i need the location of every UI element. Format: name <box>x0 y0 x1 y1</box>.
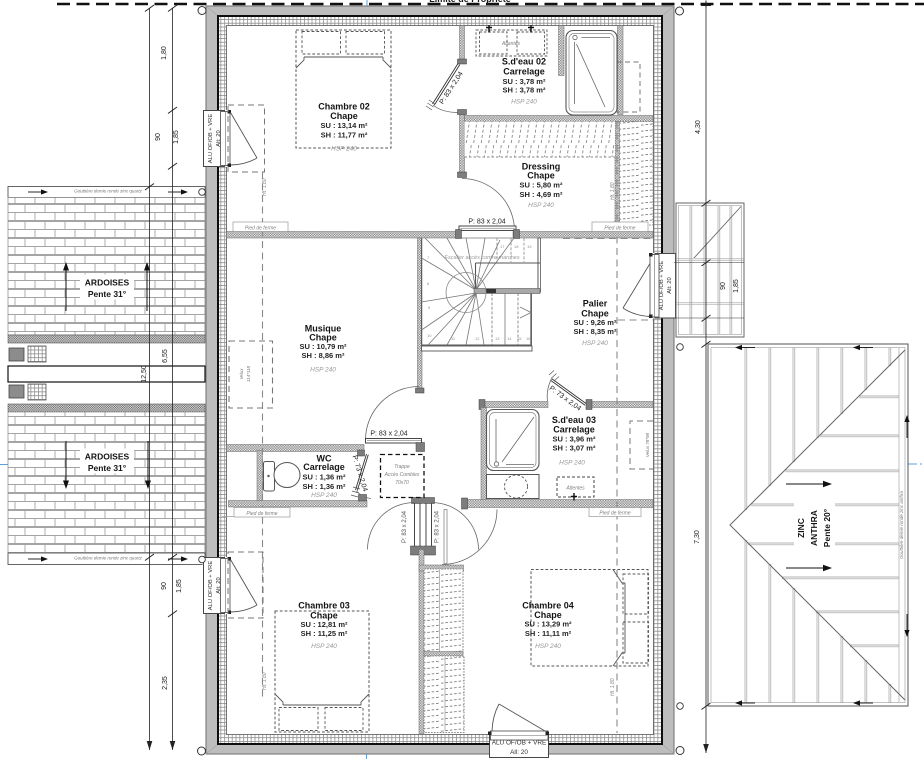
svg-text:Attentes: Attentes <box>565 486 585 492</box>
svg-text:Carrelage: Carrelage <box>503 67 545 77</box>
svg-text:Chape: Chape <box>534 610 562 620</box>
svg-text:SH : 8,86 m²: SH : 8,86 m² <box>302 351 345 360</box>
svg-text:Pied de ferme: Pied de ferme <box>604 226 635 232</box>
svg-text:Pente 20°: Pente 20° <box>822 508 832 547</box>
svg-text:HSP 240: HSP 240 <box>310 367 336 374</box>
svg-text:Ht. 1,80: Ht. 1,80 <box>610 182 616 200</box>
svg-text:90: 90 <box>155 133 162 141</box>
svg-text:Limite de Propriété: Limite de Propriété <box>429 0 511 4</box>
svg-text:SH : 3,78 m²: SH : 3,78 m² <box>503 86 546 95</box>
svg-text:ANTHRA: ANTHRA <box>809 510 819 546</box>
svg-text:Ht. 1,80: Ht. 1,80 <box>262 672 268 690</box>
svg-text:SH : 11,77 m²: SH : 11,77 m² <box>321 131 368 140</box>
svg-text:Carrelage: Carrelage <box>303 462 345 472</box>
svg-text:114*118: 114*118 <box>246 365 251 382</box>
svg-text:HSP 240: HSP 240 <box>582 340 608 347</box>
svg-text:Accès Combles: Accès Combles <box>384 472 420 478</box>
svg-text:1,85: 1,85 <box>173 130 180 144</box>
svg-text:HSP 240: HSP 240 <box>311 492 337 499</box>
svg-text:S.d'eau 03: S.d'eau 03 <box>552 415 596 425</box>
svg-text:SU : 13,14 m²: SU : 13,14 m² <box>320 121 368 130</box>
svg-text:ZINC: ZINC <box>796 518 806 538</box>
svg-text:1,80: 1,80 <box>161 46 168 60</box>
svg-text:6,55: 6,55 <box>162 349 169 363</box>
svg-text:Pied de ferme: Pied de ferme <box>245 226 276 232</box>
svg-text:ARDOISES: ARDOISES <box>85 278 130 288</box>
svg-text:Atlantes: Atlantes <box>501 41 521 47</box>
svg-text:HSP 240: HSP 240 <box>511 99 537 106</box>
svg-text:90: 90 <box>720 282 727 290</box>
svg-text:SU : 13,29 m²: SU : 13,29 m² <box>524 620 572 629</box>
svg-text:12: 12 <box>475 336 480 341</box>
svg-text:S.d'eau 02: S.d'eau 02 <box>502 57 546 67</box>
svg-text:Chape: Chape <box>527 171 555 181</box>
svg-text:SU : 3,96 m²: SU : 3,96 m² <box>553 435 596 444</box>
svg-text:SU : 5,80 m²: SU : 5,80 m² <box>520 181 563 190</box>
svg-text:7,30: 7,30 <box>694 530 701 544</box>
svg-text:SH : 8,35 m²: SH : 8,35 m² <box>574 327 617 336</box>
svg-text:Pied de ferme: Pied de ferme <box>246 511 277 517</box>
svg-text:4,30: 4,30 <box>695 120 702 134</box>
svg-text:12,50: 12,50 <box>141 365 148 383</box>
svg-text:ALU OF/OB + VRE: ALU OF/OB + VRE <box>208 114 214 164</box>
svg-text:Ht. 1,80: Ht. 1,80 <box>610 678 616 696</box>
svg-text:SH : 3,07 m²: SH : 3,07 m² <box>553 444 596 453</box>
svg-text:P: 83 x 2,04: P: 83 x 2,04 <box>468 219 505 226</box>
svg-text:ARDOISES: ARDOISES <box>85 452 130 462</box>
svg-text:Carrelage: Carrelage <box>553 425 595 435</box>
svg-text:HSP 240: HSP 240 <box>535 643 561 650</box>
svg-text:1,85: 1,85 <box>176 579 183 593</box>
svg-text:16: 16 <box>526 336 531 341</box>
svg-text:HSP 240: HSP 240 <box>311 643 337 650</box>
svg-text:P: 83 x 2,04: P: 83 x 2,04 <box>370 431 407 438</box>
svg-text:15: 15 <box>517 336 522 341</box>
svg-text:SH : 4,69 m²: SH : 4,69 m² <box>520 190 563 199</box>
svg-text:Chape: Chape <box>310 611 338 621</box>
svg-text:Pente 31°: Pente 31° <box>88 463 127 473</box>
svg-text:70x70: 70x70 <box>395 480 409 486</box>
svg-text:2,35: 2,35 <box>162 676 169 690</box>
svg-text:Chambre 02: Chambre 02 <box>318 102 370 112</box>
svg-text:All: 20: All: 20 <box>510 749 528 756</box>
svg-text:ALU OF/OB + VRE: ALU OF/OB + VRE <box>208 561 214 611</box>
svg-text:SU : 12,81 m²: SU : 12,81 m² <box>300 620 348 629</box>
svg-text:10: 10 <box>427 333 432 338</box>
svg-text:Gouttière demie ronde zinc qua: Gouttière demie ronde zinc quartz <box>74 556 143 561</box>
svg-text:Gouttière demie ronde zinc ant: Gouttière demie ronde zinc anthra <box>899 490 904 559</box>
svg-text:SH : 11,11 m²: SH : 11,11 m² <box>525 629 572 638</box>
svg-text:Pente 31°: Pente 31° <box>88 289 127 299</box>
svg-text:14: 14 <box>507 336 512 341</box>
svg-text:SH : 1,36 m²: SH : 1,36 m² <box>303 482 346 491</box>
svg-text:ALU OF/OB + VRE: ALU OF/OB + VRE <box>659 261 665 311</box>
svg-text:Escalier accès contre-marches: Escalier accès contre-marches <box>444 255 519 261</box>
svg-text:13: 13 <box>495 336 500 341</box>
svg-text:ALU OF/OB + VRE: ALU OF/OB + VRE <box>492 740 547 747</box>
svg-text:Chambre 04: Chambre 04 <box>522 601 574 611</box>
svg-text:Ht. 1,80: Ht. 1,80 <box>262 178 268 196</box>
svg-text:SU : 10,79 m²: SU : 10,79 m² <box>299 342 347 351</box>
svg-text:Pied de ferme: Pied de ferme <box>599 511 630 517</box>
svg-text:P: 83 x 2,04: P: 83 x 2,04 <box>435 510 441 543</box>
svg-text:Palier: Palier <box>583 299 608 309</box>
svg-text:90: 90 <box>161 582 168 590</box>
svg-text:HSP 240: HSP 240 <box>559 460 585 467</box>
svg-text:SU : 1,36 m²: SU : 1,36 m² <box>303 473 346 482</box>
svg-text:Chape: Chape <box>309 333 337 343</box>
svg-text:Alt: 20: Alt: 20 <box>216 130 222 146</box>
svg-text:19: 19 <box>527 244 532 249</box>
svg-text:HSP 240: HSP 240 <box>331 146 357 153</box>
svg-text:Gouttière demie ronde zinc qua: Gouttière demie ronde zinc quartz <box>74 189 143 194</box>
svg-text:P: 83 x 2,04: P: 83 x 2,04 <box>402 510 408 543</box>
svg-text:Chape: Chape <box>581 309 609 319</box>
svg-text:18: 18 <box>514 244 519 249</box>
svg-text:Velux 78*98: Velux 78*98 <box>645 432 650 457</box>
svg-text:Chambre 03: Chambre 03 <box>298 601 350 611</box>
svg-text:Trappe: Trappe <box>394 464 410 470</box>
svg-text:17: 17 <box>500 244 505 249</box>
svg-text:Alt: 20: Alt: 20 <box>667 277 673 293</box>
svg-text:Velux: Velux <box>239 368 244 380</box>
svg-text:HSP 240: HSP 240 <box>528 202 554 209</box>
svg-text:1,85: 1,85 <box>733 279 740 293</box>
svg-text:SU : 9,26 m²: SU : 9,26 m² <box>574 318 617 327</box>
svg-text:Chape: Chape <box>330 111 358 121</box>
svg-text:Alt: 20: Alt: 20 <box>216 577 222 593</box>
svg-text:SH : 11,25 m²: SH : 11,25 m² <box>301 629 348 638</box>
